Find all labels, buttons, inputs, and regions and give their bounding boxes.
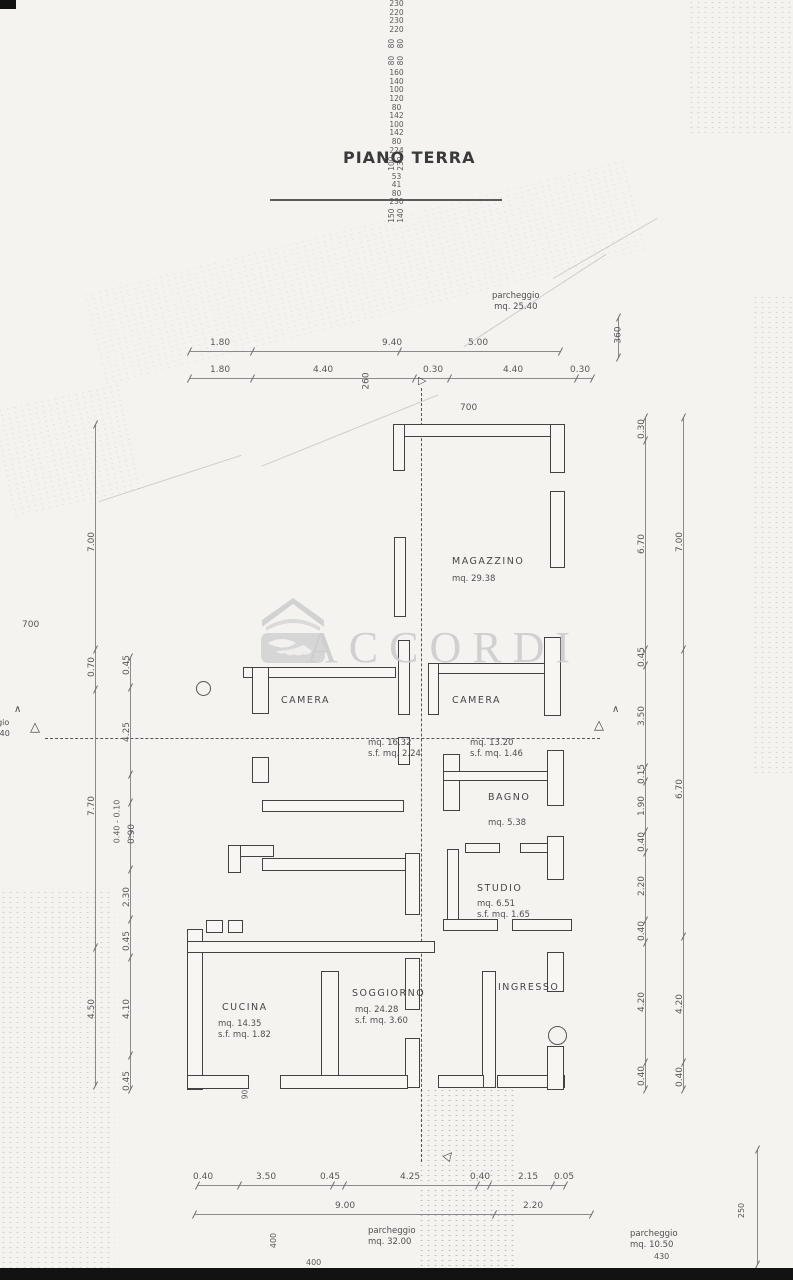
surface-line: s.f. mq. 1.82 (218, 1030, 271, 1040)
window-symbol (228, 920, 243, 933)
wall-segment (547, 836, 564, 880)
dimension-line (95, 425, 96, 1086)
dimension-line (757, 1150, 758, 1265)
door-pivot-circle (196, 681, 211, 696)
room-area-magazzino: mq. 29.38 (452, 574, 495, 585)
dim-label: 9.40 (382, 338, 402, 348)
wall-segment (252, 667, 269, 714)
section-caret: ∧ (14, 704, 21, 715)
wall-segment (465, 843, 500, 853)
speckle-region (0, 382, 145, 518)
scan-corner-mark (0, 0, 16, 9)
wall-segment (550, 424, 565, 473)
dim-label: 0.40 (637, 1066, 647, 1086)
dim-label: 0.45 (320, 1172, 340, 1182)
dim-label: 1.90 (637, 796, 647, 816)
dim-label: 0.45 (637, 647, 647, 667)
wall-segment (393, 424, 405, 471)
dim-label: 4.20 (637, 992, 647, 1012)
dim-label: 0.40 - 0.10 (112, 800, 121, 844)
dim-label: 0.30 (570, 365, 590, 375)
dim-label: 9.00 (335, 1201, 355, 1211)
dim-label: 4.40 (503, 365, 523, 375)
dimension-line (198, 1185, 566, 1186)
wall-segment (520, 843, 550, 853)
room-area-camera-left: mq. 16.32 s.f. mq. 2.24 (368, 738, 421, 761)
wall-segment (187, 1075, 249, 1089)
dim-label: 4.25 (122, 722, 132, 742)
dim-label: 0.05 (554, 1172, 574, 1182)
parking-label-top: parcheggio mq. 25.40 (492, 291, 540, 314)
opening-label: 90 (240, 1090, 249, 1100)
dim-label: 260 (362, 372, 372, 389)
section-triangle: △ (30, 720, 40, 735)
dim-label: 0.90 (127, 824, 137, 844)
dim-label: 0.15 (637, 764, 647, 784)
dim-label: 360 (614, 326, 624, 343)
accordi-watermark-text: ACCORDI (306, 622, 581, 673)
dim-label: 7.00 (675, 532, 685, 552)
room-label-magazzino: MAGAZZINO (452, 556, 524, 567)
dim-label: 0.40 (637, 921, 647, 941)
area-line: mq. 14.35 (218, 1019, 261, 1029)
room-label-ingresso: INGRESSO (498, 982, 559, 993)
dim-label: 4.20 (675, 994, 685, 1014)
section-caret: ∧ (612, 704, 619, 715)
room-label-camera-left: CAMERA (281, 695, 330, 706)
room-area-cucina: mq. 14.35 s.f. mq. 1.82 (218, 1019, 271, 1042)
north-arrow-marker: ▷ (418, 374, 426, 387)
dim-label: 2.15 (518, 1172, 538, 1182)
wall-segment (405, 853, 420, 915)
dim-label: 0.70 (87, 657, 97, 677)
dimension-line (190, 351, 561, 352)
wall-segment (262, 800, 404, 812)
dimension-line (195, 1214, 592, 1215)
wall-segment (228, 845, 241, 873)
surface-line: s.f. mq. 1.65 (477, 910, 530, 920)
edge-partial-label: ggio 0,40 (0, 718, 10, 740)
parking-top-line1: parcheggio (492, 291, 540, 301)
dim-label: 700 (22, 620, 39, 630)
wall-segment (252, 757, 269, 783)
room-label-camera-right: CAMERA (452, 695, 501, 706)
room-label-soggiorno: SOGGIORNO (352, 988, 425, 999)
speckle-region (0, 890, 115, 1268)
dim-label: 3.50 (256, 1172, 276, 1182)
dim-label: 0.40 (675, 1067, 685, 1087)
scan-bottom-bar (0, 1268, 793, 1280)
area-line: mq. 6.51 (477, 899, 515, 909)
dim-label: 5.00 (468, 338, 488, 348)
dim-label: 3.50 (637, 706, 647, 726)
room-label-cucina: CUCINA (222, 1002, 268, 1013)
plan-title: PIANO TERRA (343, 148, 476, 167)
room-label-studio: STUDIO (477, 883, 522, 894)
wall-segment (321, 971, 339, 1081)
section-triangle: △ (594, 718, 604, 733)
door-pivot-circle (548, 1026, 567, 1045)
dim-label: 2.30 (122, 887, 132, 907)
speckle-region (752, 295, 793, 775)
dim-label: 0.45 (122, 1071, 132, 1091)
surface-line: s.f. mq. 3.60 (355, 1016, 408, 1026)
wall-segment (443, 771, 550, 781)
dim-label: 430 (654, 1252, 669, 1261)
dim-label: 4.10 (122, 999, 132, 1019)
dim-label: 0.40 (470, 1172, 490, 1182)
wall-segment (482, 971, 496, 1088)
parking-label-bottom-right: parcheggio mq. 10.50 (630, 1229, 678, 1252)
wall-segment (394, 537, 406, 617)
dashed-axis-line (421, 388, 422, 1162)
room-area-bagno: mq. 5.38 (488, 818, 526, 829)
scanned-floor-plan-sheet: PIANO TERRA ACCORDI parcheggio mq. 25.40… (0, 0, 793, 1280)
wall-segment (550, 491, 565, 568)
dim-label: 0.30 (637, 419, 647, 439)
dim-label: 2.20 (523, 1201, 543, 1211)
wall-segment (280, 1075, 408, 1089)
title-underline (270, 199, 502, 201)
dim-label: 400 (306, 1258, 321, 1267)
dim-label: 4.50 (87, 999, 97, 1019)
dim-label: 6.70 (637, 534, 647, 554)
dimension-line (645, 418, 646, 1090)
dim-label: 6.70 (675, 779, 685, 799)
area-line: mq. 24.28 (355, 1005, 398, 1015)
wall-segment (547, 750, 564, 806)
dim-label: 0.45 (122, 655, 132, 675)
room-area-soggiorno: mq. 24.28 s.f. mq. 3.60 (355, 1005, 408, 1028)
wall-segment (187, 929, 203, 1090)
dim-label: 2.20 (637, 876, 647, 896)
parking-label-bottom-center: parcheggio mq. 32.00 (368, 1226, 416, 1249)
dim-label: 0.40 (193, 1172, 213, 1182)
speckle-region (688, 0, 793, 135)
dim-label: 400 (269, 1233, 278, 1248)
dim-label: 1.80 (210, 338, 230, 348)
dim-label: 4.25 (400, 1172, 420, 1182)
wall-segment (187, 941, 435, 953)
dimension-line (683, 418, 684, 1090)
room-area-camera-right: mq. 13.20 s.f. mq. 1.46 (470, 738, 523, 761)
wall-segment (405, 958, 420, 1010)
dim-label: 7.00 (87, 532, 97, 552)
wall-segment (443, 754, 460, 811)
area-line: mq. 16.32 (368, 738, 411, 748)
room-area-studio: mq. 6.51 s.f. mq. 1.65 (477, 899, 530, 922)
area-line: mq. 13.20 (470, 738, 513, 748)
speckle-region (418, 1088, 518, 1266)
dim-label: 250 (737, 1203, 746, 1218)
dim-label: 1.80 (210, 365, 230, 375)
dimension-line (190, 378, 593, 379)
wall-segment (447, 849, 459, 927)
wall-segment (547, 1046, 564, 1090)
window-symbol (206, 920, 223, 933)
surface-line: s.f. mq. 1.46 (470, 749, 523, 759)
wall-segment (438, 1075, 484, 1088)
dim-label: 700 (460, 403, 477, 413)
surface-line: s.f. mq. 2.24 (368, 749, 421, 759)
dim-label: 0.45 (122, 931, 132, 951)
parking-top-line2: mq. 25.40 (494, 302, 537, 312)
wall-segment (393, 424, 563, 437)
dim-label: 4.40 (313, 365, 333, 375)
room-label-bagno: BAGNO (488, 792, 530, 803)
dim-label: 7.70 (87, 796, 97, 816)
wall-segment (262, 858, 408, 871)
dim-label: 0.40 (637, 832, 647, 852)
